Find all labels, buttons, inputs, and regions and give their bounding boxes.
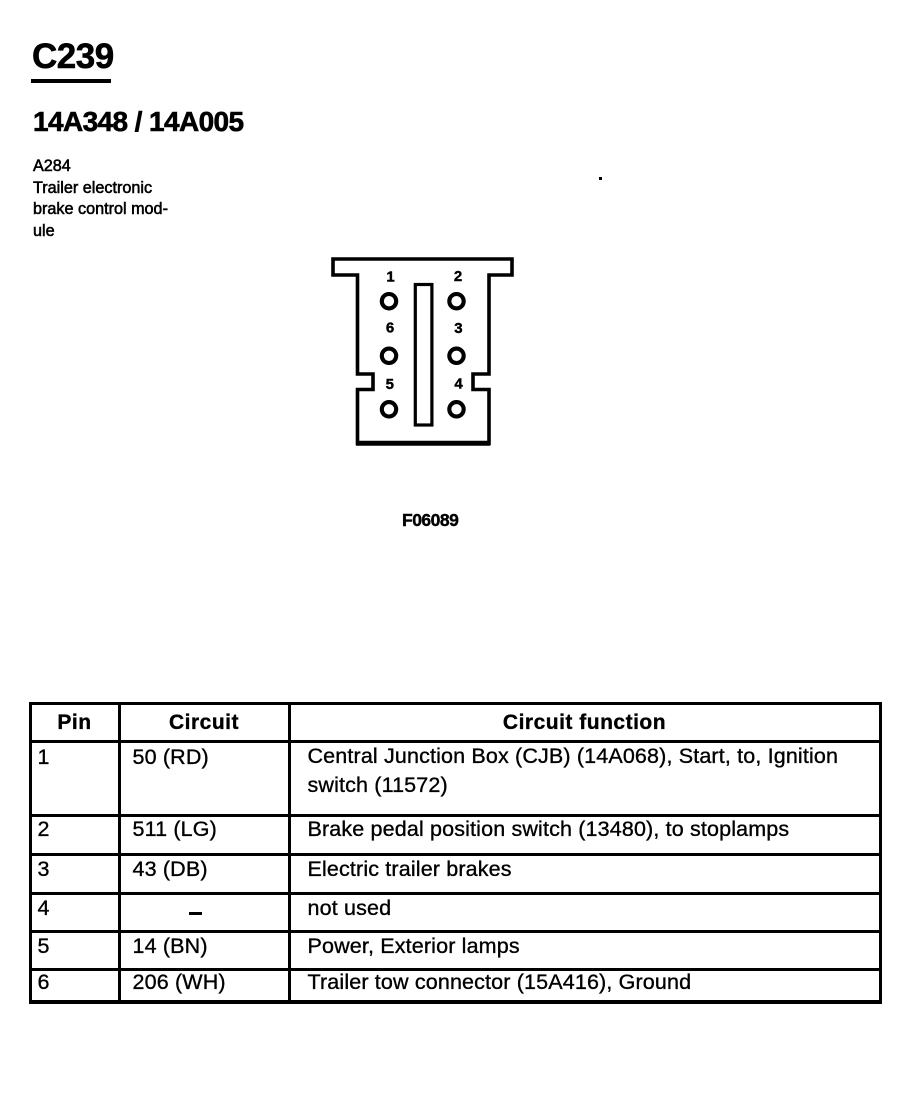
svg-text:6: 6 [386,319,394,336]
svg-text:5: 5 [386,376,394,393]
svg-text:3: 3 [454,320,462,337]
svg-text:4: 4 [454,376,463,393]
svg-text:1: 1 [386,268,394,285]
svg-text:2: 2 [454,268,462,285]
